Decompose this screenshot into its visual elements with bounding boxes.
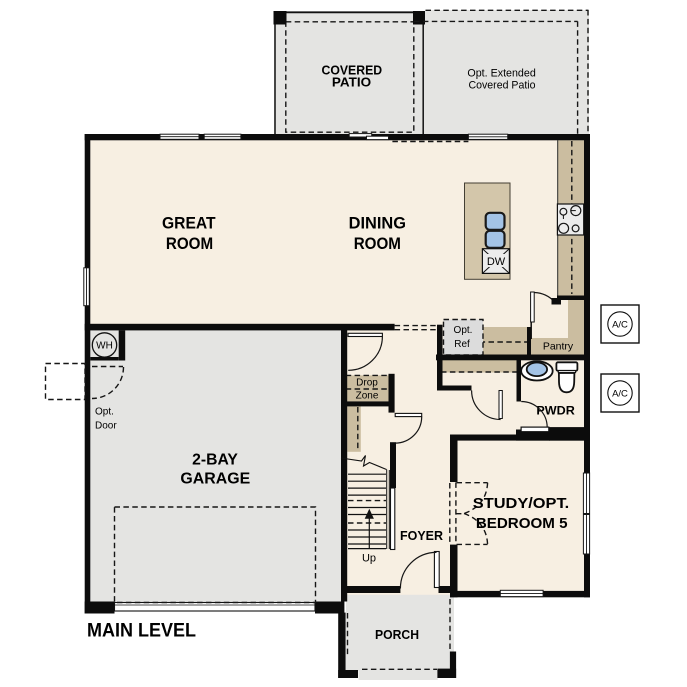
svg-text:Covered Patio: Covered Patio xyxy=(469,80,536,92)
svg-text:BEDROOM 5: BEDROOM 5 xyxy=(476,515,568,532)
svg-text:Zone: Zone xyxy=(356,391,379,402)
svg-text:Opt.: Opt. xyxy=(454,325,473,336)
svg-text:DINING: DINING xyxy=(349,214,406,233)
svg-text:STUDY/OPT.: STUDY/OPT. xyxy=(473,495,569,512)
svg-text:GARAGE: GARAGE xyxy=(180,470,250,487)
svg-text:Door: Door xyxy=(95,421,117,432)
svg-text:Opt. Extended: Opt. Extended xyxy=(467,67,535,79)
svg-text:PORCH: PORCH xyxy=(375,628,419,642)
svg-text:DW: DW xyxy=(487,256,506,268)
svg-text:A/C: A/C xyxy=(612,389,628,400)
svg-text:GREAT: GREAT xyxy=(162,214,216,233)
svg-text:Drop: Drop xyxy=(356,378,378,389)
svg-text:ROOM: ROOM xyxy=(354,234,401,253)
svg-text:Pantry: Pantry xyxy=(543,341,574,353)
svg-text:Ref: Ref xyxy=(454,339,470,350)
svg-text:MAIN LEVEL: MAIN LEVEL xyxy=(87,621,196,642)
svg-text:Opt.: Opt. xyxy=(95,407,114,418)
svg-text:Up: Up xyxy=(362,553,376,565)
svg-text:PATIO: PATIO xyxy=(332,75,371,90)
svg-text:2-BAY: 2-BAY xyxy=(192,451,238,468)
svg-text:WH: WH xyxy=(96,341,113,352)
svg-text:FOYER: FOYER xyxy=(400,528,444,543)
svg-text:ROOM: ROOM xyxy=(166,234,213,253)
svg-text:A/C: A/C xyxy=(612,320,628,331)
